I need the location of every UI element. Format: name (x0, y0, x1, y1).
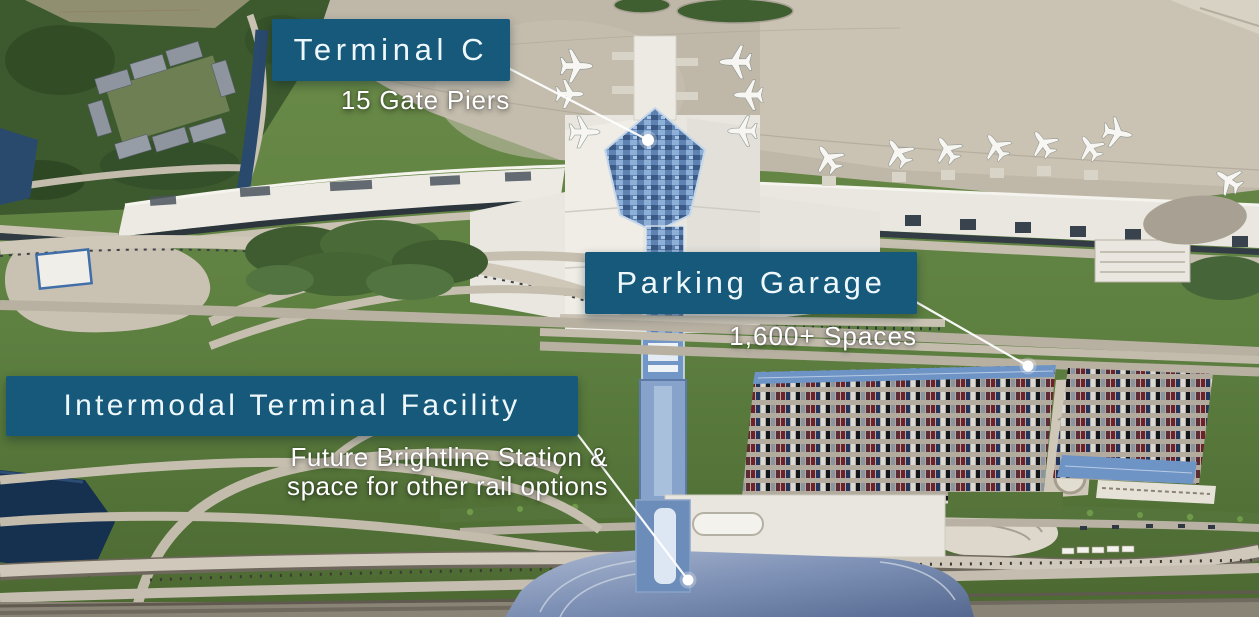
itf-title: Intermodal Terminal Facility (64, 389, 521, 423)
parking-garage-subtitle: 1,600+ Spaces (660, 321, 917, 352)
itf-subtitle-line-1: Future Brightline Station & (250, 443, 608, 472)
terminal-c-subtitle: 15 Gate Piers (300, 85, 510, 116)
apm-spine-over-itf (636, 500, 690, 592)
terminal-c-title: Terminal C (294, 32, 489, 68)
parking-garage-label: Parking Garage (585, 252, 917, 314)
airport-aerial-rendering-frame: Terminal C 15 Gate Piers Parking Garage … (0, 0, 1259, 617)
itf-subtitle-line-2: space for other rail options (250, 472, 608, 501)
parking-garage-title: Parking Garage (616, 265, 885, 301)
itf-subtitle: Future Brightline Station & space for ot… (250, 443, 608, 501)
terminal-c-label: Terminal C (272, 19, 510, 81)
intermodal-terminal-facility-label: Intermodal Terminal Facility (6, 376, 578, 436)
